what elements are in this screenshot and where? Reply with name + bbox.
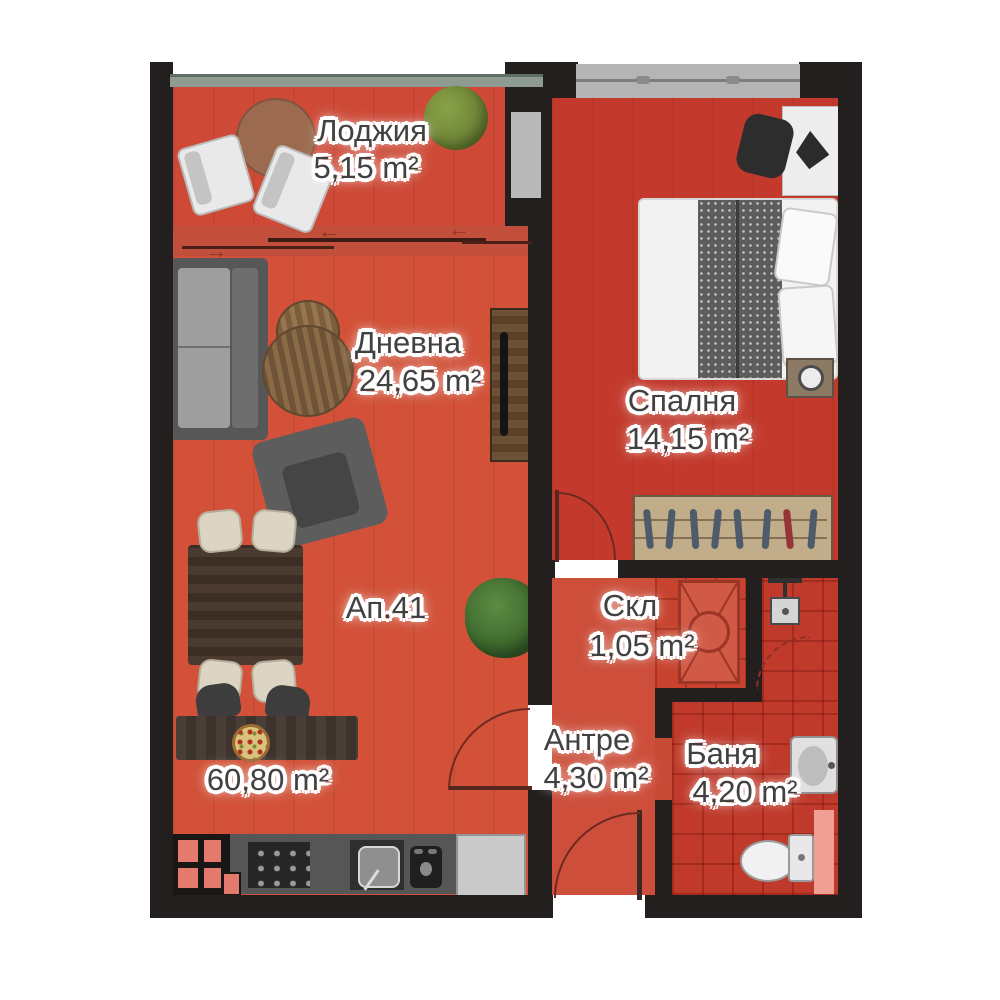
shower-dot — [782, 608, 789, 615]
loggia-railing — [170, 74, 543, 87]
area-unit: m² — [612, 760, 648, 795]
wall-bedroom-bottom-left — [540, 560, 555, 578]
bed-pillow — [773, 206, 839, 287]
sofa-back — [232, 268, 258, 428]
stove-icon — [248, 842, 310, 888]
window-frame-line — [576, 79, 800, 82]
cabinet-tile — [204, 840, 221, 862]
wall-bottom-right — [645, 895, 862, 918]
area-value: 14,15 — [627, 421, 705, 456]
sofa-seat — [178, 268, 230, 428]
duct-inset — [511, 112, 541, 198]
wardrobe-rail — [635, 537, 827, 539]
slide-arrow-left-icon: ← — [318, 218, 340, 244]
coffee-machine-dot — [420, 862, 432, 876]
nightstand — [786, 358, 834, 398]
hanging-clothes-icon — [643, 509, 654, 550]
area-value: 24,65 — [359, 363, 437, 398]
area-value: 60,80 — [207, 762, 285, 797]
toilet-button — [798, 854, 805, 861]
window-handle — [636, 76, 650, 84]
wall-right — [838, 62, 862, 918]
kitchen-sink-icon — [350, 840, 404, 890]
cabinet-tile — [178, 868, 198, 888]
area-unit: m² — [382, 150, 418, 185]
shower-stem — [783, 583, 787, 597]
window-handle — [726, 76, 740, 84]
hanging-clothes-icon — [762, 509, 772, 549]
coffee-machine-lid — [414, 849, 423, 854]
coffee-machine-icon — [410, 846, 442, 888]
room-area-bedroom: 14,15 m² — [627, 421, 749, 457]
bedroom-window — [576, 64, 800, 98]
dining-chair — [250, 508, 297, 554]
bathroom-door-threshold — [655, 738, 672, 800]
pizza-plate — [232, 724, 270, 762]
wall-storage-bottom — [655, 688, 762, 702]
coffee-table-large — [262, 325, 354, 417]
bed-duvet — [698, 200, 782, 378]
wall-hall-bath-upper — [655, 702, 672, 738]
area-value: 4,30 — [543, 760, 603, 795]
area-unit: m² — [293, 762, 329, 797]
shower-box — [770, 597, 800, 625]
room-label-bath: Баня — [686, 736, 758, 772]
room-label-hall: Антре — [544, 722, 630, 758]
fridge — [456, 834, 526, 898]
bed-pillow — [777, 284, 838, 368]
sofa-seat-divider — [178, 346, 230, 348]
wall-mid-vertical-lower — [528, 790, 552, 918]
floor-plan: ← ← → — [0, 0, 1000, 1000]
wall-mid-vertical — [528, 226, 552, 705]
room-label-living: Дневна — [355, 325, 461, 361]
area-unit: m² — [658, 628, 694, 663]
room-area-bath: 4,20 m² — [692, 774, 797, 810]
area-unit: m² — [713, 421, 749, 456]
hanging-clothes-icon — [783, 509, 794, 550]
wall-hall-bath-lower — [655, 800, 672, 895]
area-unit: m² — [445, 363, 481, 398]
sink-basin — [358, 846, 400, 888]
bush-plant — [424, 86, 488, 150]
bed — [640, 200, 836, 378]
slide-arrow-right-icon: → — [205, 238, 227, 264]
sink-tap-icon — [828, 762, 835, 769]
hanging-clothes-icon — [733, 509, 743, 549]
room-area-loggia: 5,15 m² — [313, 150, 418, 186]
total-area-label: 60,80 m² — [207, 762, 329, 798]
wall-left — [150, 62, 173, 918]
dining-chair — [196, 508, 244, 554]
area-value: 4,20 — [692, 774, 752, 809]
coffee-machine-lid — [428, 849, 437, 854]
sink-bowl — [798, 746, 828, 786]
hanging-clothes-icon — [690, 509, 700, 549]
cabinet-tile-small — [222, 872, 241, 896]
lamp-icon — [798, 365, 824, 391]
dining-table — [188, 545, 303, 665]
area-value: 1,05 — [589, 628, 649, 663]
room-area-hall: 4,30 m² — [543, 760, 648, 796]
room-area-living: 24,65 m² — [359, 363, 481, 399]
area-unit: m² — [761, 774, 797, 809]
cabinet-tile — [178, 840, 198, 862]
slide-arrow-left2-icon: ← — [448, 216, 470, 242]
apartment-number-label: Ап.41 — [346, 590, 427, 626]
room-area-storage: 1,05 m² — [589, 628, 694, 664]
hanging-clothes-icon — [807, 509, 817, 549]
room-label-bedroom: Спалня — [628, 383, 736, 419]
wall-bedroom-bottom-right — [618, 560, 862, 578]
wardrobe-rail — [635, 519, 827, 521]
area-value: 5,15 — [313, 150, 373, 185]
room-label-storage: Скл — [603, 588, 657, 624]
laptop-icon — [791, 131, 833, 173]
room-label-loggia: Лоджия — [317, 113, 427, 149]
hanging-clothes-icon — [711, 509, 722, 550]
bed-duvet-fold — [736, 200, 739, 378]
wardrobe — [633, 495, 833, 565]
cabinet-tile — [204, 868, 221, 888]
toilet-tank — [788, 834, 814, 882]
slider-rail-right — [462, 241, 532, 244]
hanging-clothes-icon — [665, 509, 675, 549]
tv-icon — [500, 332, 508, 436]
wall-top-bedroom-right — [799, 62, 838, 98]
sofa — [170, 258, 268, 440]
wall-bottom-left — [150, 895, 553, 918]
desk — [782, 106, 840, 196]
radiator — [814, 810, 834, 894]
